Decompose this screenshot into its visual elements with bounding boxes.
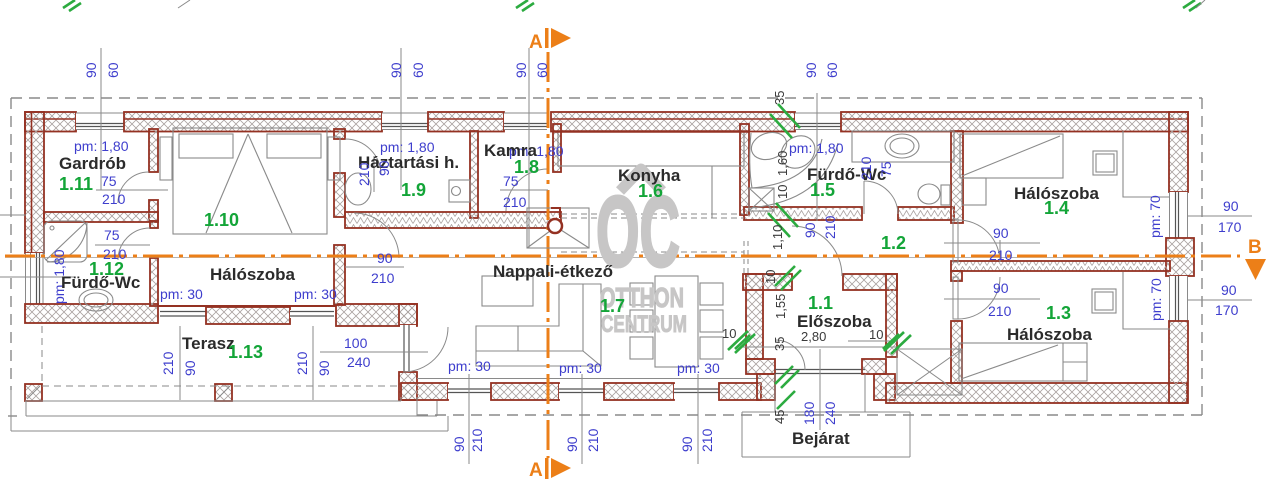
svg-text:Háztartási h.: Háztartási h. (358, 153, 459, 172)
svg-text:10: 10 (722, 326, 736, 341)
svg-text:pm: 30: pm: 30 (160, 286, 203, 302)
svg-text:1,10: 1,10 (770, 225, 785, 250)
svg-text:1.4: 1.4 (1044, 198, 1069, 218)
svg-text:210: 210 (371, 270, 395, 286)
svg-text:Gardrób: Gardrób (59, 154, 126, 173)
svg-text:10: 10 (763, 270, 778, 284)
svg-text:210: 210 (585, 428, 601, 452)
svg-text:pm: 70: pm: 70 (1147, 195, 1163, 238)
svg-text:75: 75 (101, 173, 117, 189)
svg-text:210: 210 (356, 162, 372, 186)
svg-text:1.3: 1.3 (1046, 303, 1071, 323)
svg-text:90: 90 (376, 160, 392, 176)
svg-text:90: 90 (513, 62, 529, 78)
svg-text:Bejárat: Bejárat (792, 429, 850, 448)
svg-text:1.2: 1.2 (881, 233, 906, 253)
svg-text:75: 75 (878, 161, 894, 177)
svg-text:pm: 70: pm: 70 (1148, 278, 1164, 321)
svg-text:90: 90 (1221, 282, 1237, 298)
svg-text:180: 180 (801, 401, 817, 425)
svg-text:90: 90 (802, 222, 818, 238)
svg-text:90: 90 (451, 436, 467, 452)
svg-text:60: 60 (824, 62, 840, 78)
svg-text:240: 240 (347, 354, 371, 370)
svg-text:B: B (1248, 237, 1262, 258)
svg-text:210: 210 (469, 428, 485, 452)
svg-text:240: 240 (822, 401, 838, 425)
svg-text:75: 75 (104, 227, 120, 243)
svg-text:2,80: 2,80 (801, 329, 826, 344)
svg-text:210: 210 (102, 191, 126, 207)
svg-text:1,60: 1,60 (775, 151, 790, 176)
svg-text:210: 210 (858, 156, 874, 180)
svg-text:pm: 30: pm: 30 (448, 358, 491, 374)
svg-text:90: 90 (182, 360, 198, 376)
svg-text:1.11: 1.11 (59, 174, 93, 194)
svg-text:90: 90 (679, 436, 695, 452)
svg-text:60: 60 (410, 62, 426, 78)
svg-text:1,55: 1,55 (773, 294, 788, 319)
svg-text:Hálószoba: Hálószoba (1007, 325, 1093, 344)
svg-text:90: 90 (564, 436, 580, 452)
svg-text:10: 10 (869, 327, 883, 342)
svg-text:pm: 1,80: pm: 1,80 (74, 138, 129, 154)
svg-text:pm: 30: pm: 30 (677, 360, 720, 376)
svg-text:210: 210 (503, 194, 527, 210)
svg-text:1.6: 1.6 (638, 181, 663, 201)
svg-text:1.7: 1.7 (600, 296, 625, 316)
svg-text:90: 90 (1223, 198, 1239, 214)
svg-text:Hálószoba: Hálószoba (210, 265, 296, 284)
svg-text:60: 60 (105, 62, 121, 78)
svg-text:90: 90 (83, 62, 99, 78)
svg-text:210: 210 (989, 247, 1013, 263)
svg-text:1.1: 1.1 (808, 293, 833, 313)
svg-text:pm: 30: pm: 30 (294, 286, 337, 302)
svg-text:A: A (529, 460, 543, 481)
svg-text:210: 210 (294, 351, 310, 375)
svg-text:90: 90 (316, 360, 332, 376)
svg-text:60: 60 (534, 62, 550, 78)
svg-text:90: 90 (993, 225, 1009, 241)
svg-text:pm: 30: pm: 30 (559, 360, 602, 376)
svg-text:35: 35 (772, 91, 787, 105)
svg-text:90: 90 (388, 62, 404, 78)
svg-text:A: A (529, 32, 543, 53)
svg-text:210: 210 (160, 351, 176, 375)
svg-text:170: 170 (1215, 302, 1239, 318)
svg-text:Nappali-étkező: Nappali-étkező (493, 262, 613, 281)
svg-text:Fürdő-Wc: Fürdő-Wc (61, 273, 140, 292)
svg-text:210: 210 (699, 428, 715, 452)
svg-text:1.5: 1.5 (810, 180, 835, 200)
svg-text:Terasz: Terasz (182, 334, 235, 353)
svg-text:35: 35 (772, 337, 787, 351)
svg-text:10: 10 (775, 185, 790, 199)
svg-text:210: 210 (822, 215, 838, 239)
svg-text:pm: 1,80: pm: 1,80 (789, 140, 844, 156)
svg-text:90: 90 (377, 250, 393, 266)
svg-text:210: 210 (988, 303, 1012, 319)
svg-text:90: 90 (803, 62, 819, 78)
svg-text:1.13: 1.13 (228, 342, 263, 362)
svg-text:1.10: 1.10 (204, 210, 239, 230)
svg-text:210: 210 (103, 246, 127, 262)
svg-text:100: 100 (344, 335, 368, 351)
svg-text:75: 75 (503, 173, 519, 189)
svg-text:90: 90 (993, 280, 1009, 296)
svg-text:1.9: 1.9 (401, 180, 426, 200)
svg-text:170: 170 (1218, 219, 1242, 235)
svg-text:45: 45 (772, 410, 787, 424)
